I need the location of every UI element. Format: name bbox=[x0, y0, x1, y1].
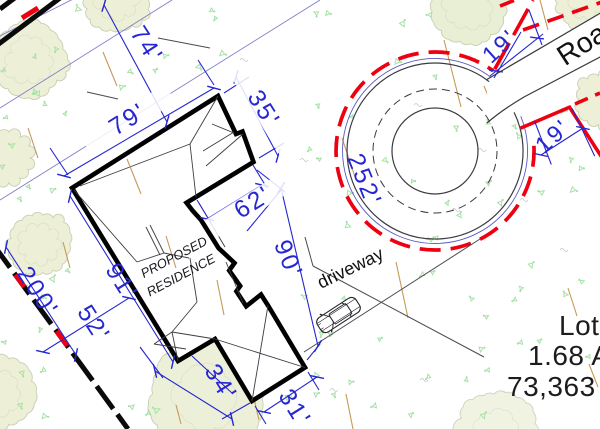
svg-text:1.68 Acres: 1.68 Acres bbox=[528, 340, 600, 371]
svg-text:73,363 SF: 73,363 SF bbox=[507, 371, 600, 402]
svg-text:Lot 14: Lot 14 bbox=[559, 310, 600, 341]
